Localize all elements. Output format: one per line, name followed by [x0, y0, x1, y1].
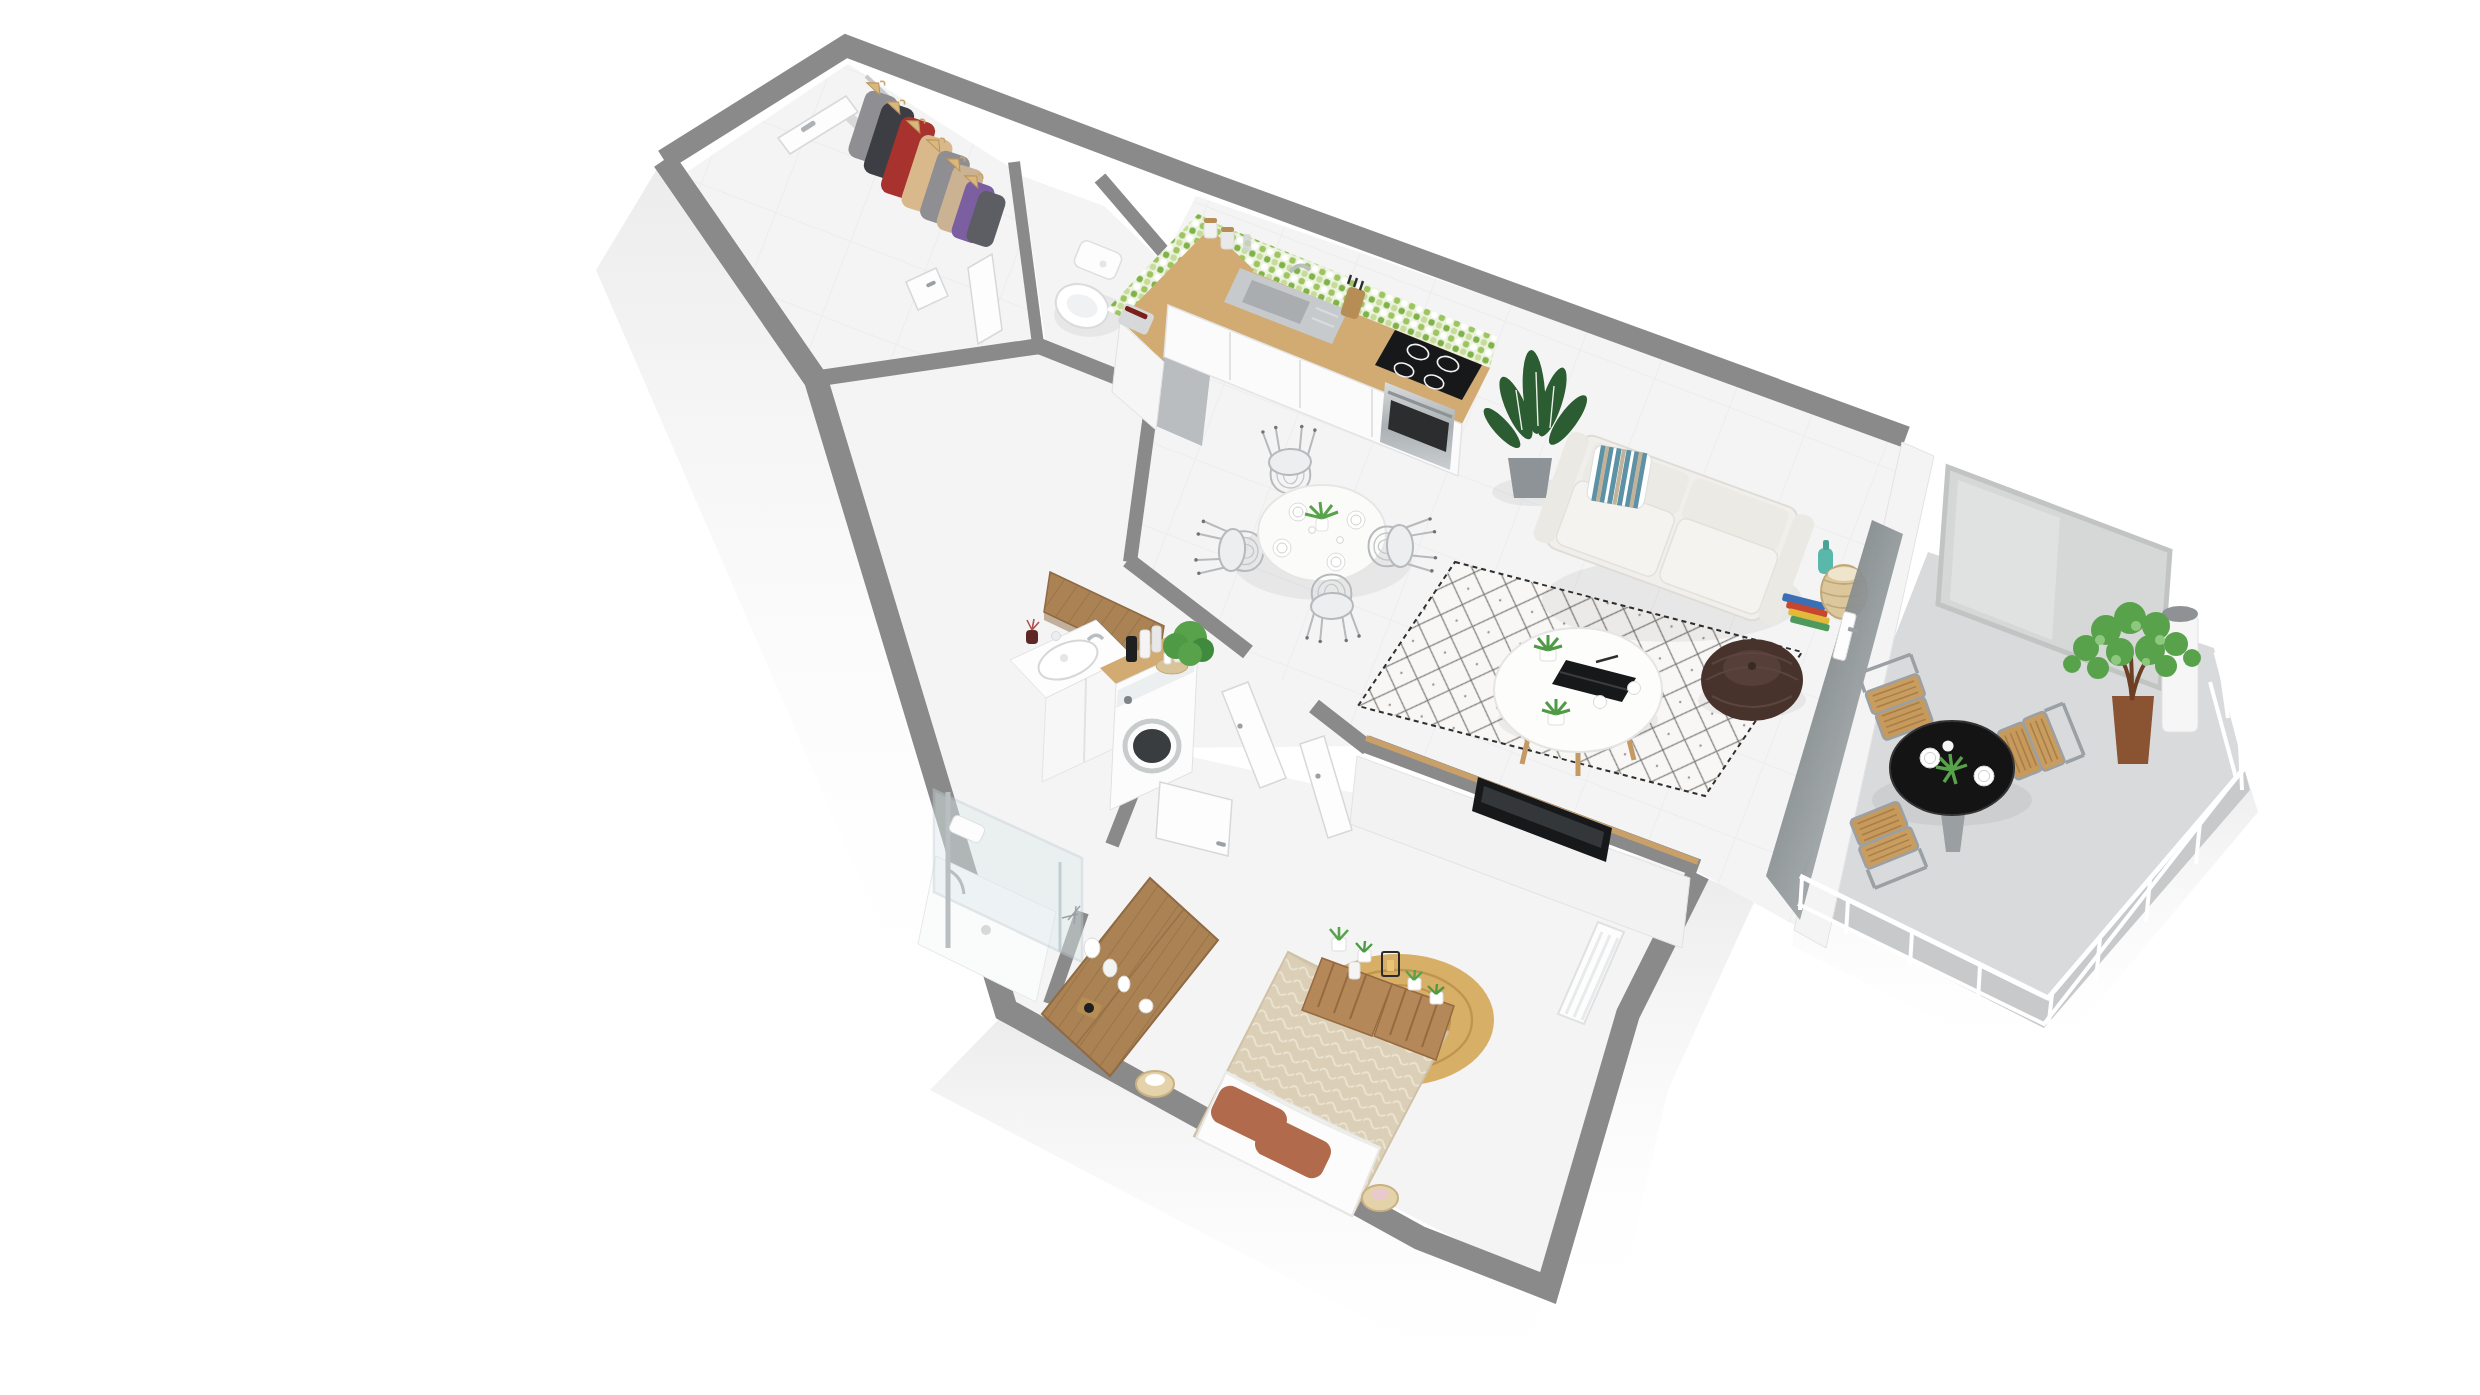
oil-bottle [1243, 234, 1251, 252]
striped-pillow [1586, 444, 1653, 509]
teapot [1942, 740, 1953, 751]
shower-drain [981, 925, 991, 935]
floorplan-3d-render [0, 0, 2480, 1395]
mug [1628, 682, 1641, 695]
dining-table [1258, 485, 1386, 581]
floorplan-stage [0, 0, 2480, 1395]
candle [1349, 962, 1360, 979]
soap-dish [1052, 632, 1061, 641]
jar-white [1204, 222, 1217, 238]
mug [1594, 696, 1607, 709]
